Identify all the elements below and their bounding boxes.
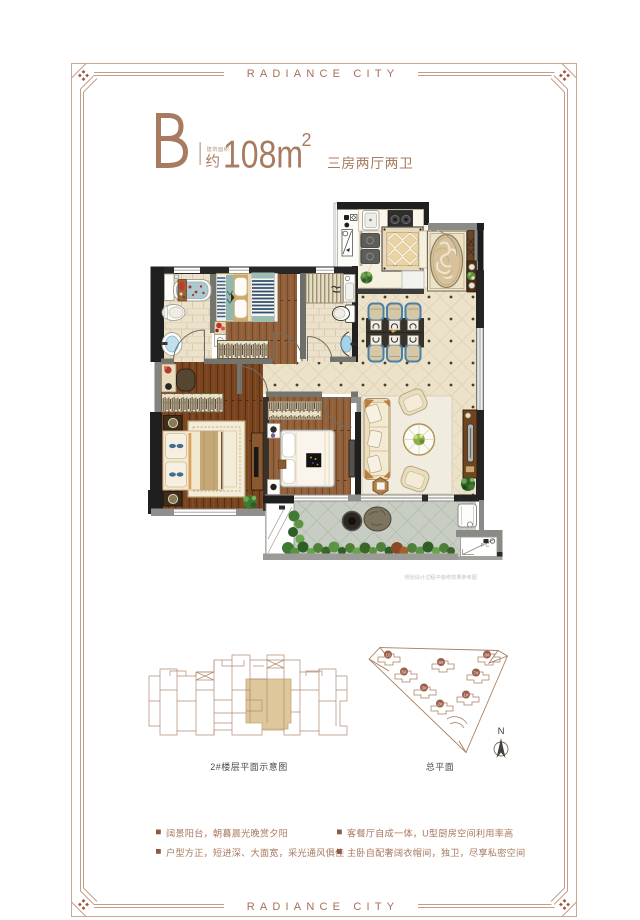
svg-text:阔景阳台，朝暮晨光晚赏夕阳: 阔景阳台，朝暮晨光晚赏夕阳: [166, 828, 288, 839]
svg-text:户型方正，短进深、大面宽，采光通风俱佳: 户型方正，短进深、大面宽，采光通风俱佳: [166, 847, 344, 858]
svg-text:F C: F C: [481, 543, 489, 549]
svg-text:7#: 7#: [473, 670, 479, 675]
svg-text:2: 2: [302, 130, 312, 150]
svg-text:3#: 3#: [421, 685, 427, 690]
svg-text:10: 10: [385, 652, 391, 657]
svg-text:5#: 5#: [401, 669, 407, 674]
svg-text:2#: 2#: [437, 701, 443, 706]
svg-text:1#: 1#: [463, 692, 469, 697]
svg-text:6#: 6#: [438, 660, 444, 665]
svg-text:主卧自配奢阔衣帽间，独卫，尽享私密空间: 主卧自配奢阔衣帽间，独卫，尽享私密空间: [347, 847, 525, 858]
svg-text:108m: 108m: [223, 134, 303, 177]
svg-text:N: N: [498, 726, 505, 737]
svg-text:总平面: 总平面: [426, 761, 455, 772]
svg-text:RADIANCE CITY: RADIANCE CITY: [247, 68, 400, 80]
svg-text:规划设计过程中装修效果参考图: 规划设计过程中装修效果参考图: [404, 573, 477, 581]
svg-text:三房两厅两卫: 三房两厅两卫: [327, 156, 413, 171]
svg-text:RADIANCE CITY: RADIANCE CITY: [247, 901, 400, 913]
svg-text:8#: 8#: [484, 652, 490, 657]
svg-text:约: 约: [206, 154, 221, 171]
svg-text:2#楼层平面示意图: 2#楼层平面示意图: [210, 761, 288, 772]
svg-text:客餐厅自成一体，U型厨房空间利用率高: 客餐厅自成一体，U型厨房空间利用率高: [347, 828, 513, 839]
